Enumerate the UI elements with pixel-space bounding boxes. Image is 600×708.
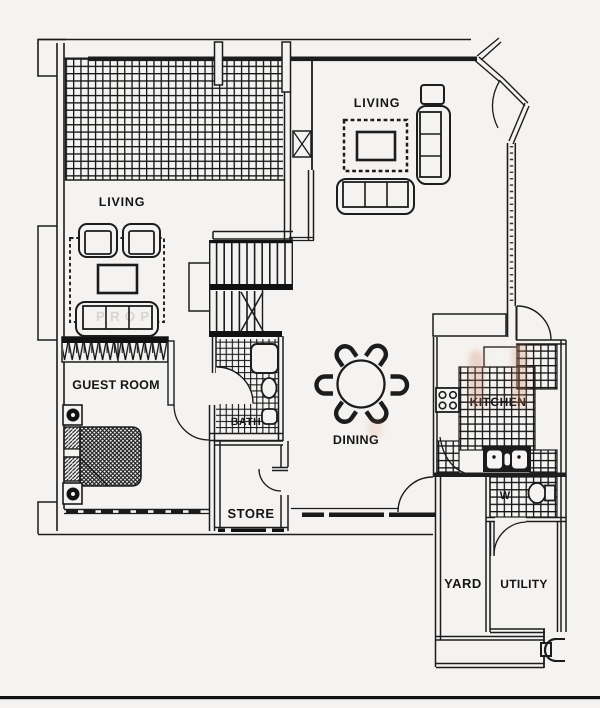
svg-text:STORE: STORE <box>227 506 274 521</box>
svg-text:W: W <box>500 490 511 502</box>
svg-text:YARD: YARD <box>444 576 482 591</box>
svg-text:PROP: PROP <box>96 309 154 324</box>
svg-text:BATH: BATH <box>231 416 261 428</box>
svg-text:LIVING: LIVING <box>99 195 145 209</box>
svg-text:UTILITY: UTILITY <box>500 577 547 591</box>
svg-text:GUEST ROOM: GUEST ROOM <box>72 378 159 392</box>
svg-text:LIVING: LIVING <box>354 96 400 110</box>
